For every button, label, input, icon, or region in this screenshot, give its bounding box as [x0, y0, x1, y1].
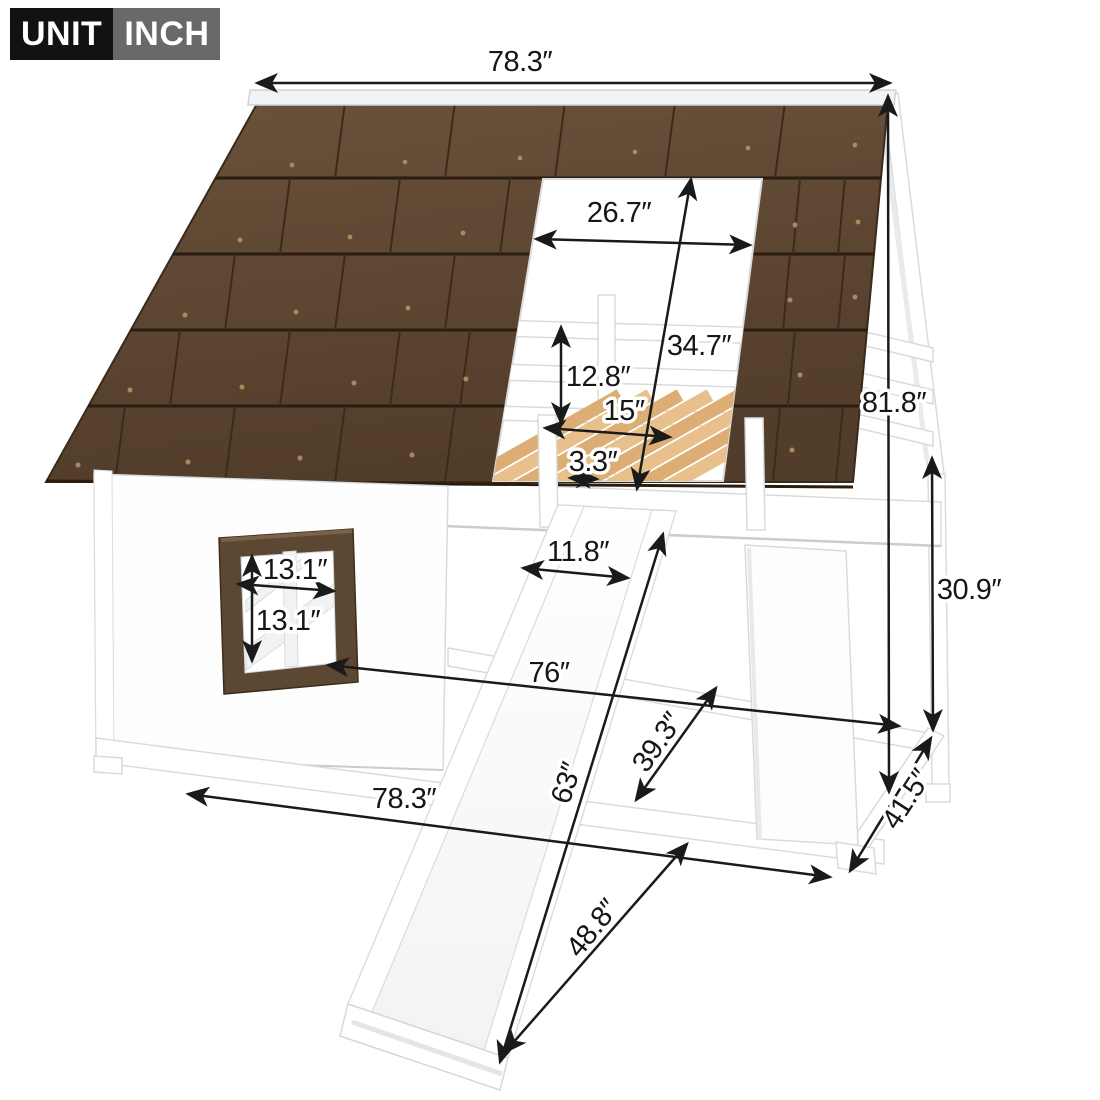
dim-slide-length-label: 48.8″ [560, 893, 625, 963]
dim-slat-width: 3.3″ [569, 446, 618, 479]
dim-window-height-label: 13.1″ [256, 605, 320, 637]
dim-roof-opening-height-label: 34.7″ [667, 330, 731, 362]
dim-slide-width-label: 11.8″ [547, 536, 609, 568]
product-dimension-diagram: 78.3″ 26.7″ 34.7″ 12.8″ 15″ 3.3″ 81.8″ [0, 0, 1100, 1100]
dim-base-length-label: 78.3″ [372, 783, 436, 815]
unit-value: INCH [113, 8, 220, 60]
wall-corner-trim [94, 470, 114, 762]
dim-slat-width-arrow [570, 478, 597, 479]
unit-badge: UNIT INCH [10, 8, 220, 60]
dim-top-width: 78.3″ [257, 46, 890, 83]
dim-bed-depth-label: 39.3″ [626, 707, 689, 778]
dim-slide-opening-width-label: 15″ [603, 395, 644, 427]
bed-illustration: 78.3″ 26.7″ 34.7″ 12.8″ 15″ 3.3″ 81.8″ [0, 0, 1100, 1100]
dim-overall-height-arrow [888, 96, 889, 792]
roof-ridge-cap [248, 90, 896, 105]
slide-entry-post-right [745, 418, 765, 530]
dim-window-width-label: 13.1″ [263, 554, 327, 586]
gable-rafter [883, 93, 944, 478]
dim-roof-opening-width-label: 26.7″ [587, 197, 651, 229]
dim-slat-width-label: 3.3″ [569, 446, 618, 478]
front-left-foot [94, 756, 122, 774]
roof [46, 90, 896, 525]
dim-bed-length-label: 76″ [528, 657, 569, 689]
dim-overall-height-label: 81.8″ [862, 387, 926, 419]
front-right-foot [836, 842, 876, 874]
front-right-panel [745, 545, 858, 845]
unit-label: UNIT [10, 8, 113, 60]
dim-guardrail-height-label: 12.8″ [566, 361, 630, 393]
dim-top-width-label: 78.3″ [488, 46, 552, 78]
dim-underbed-clearance-label: 30.9″ [937, 574, 1001, 606]
dim-underbed-clearance-arrow [932, 458, 933, 730]
